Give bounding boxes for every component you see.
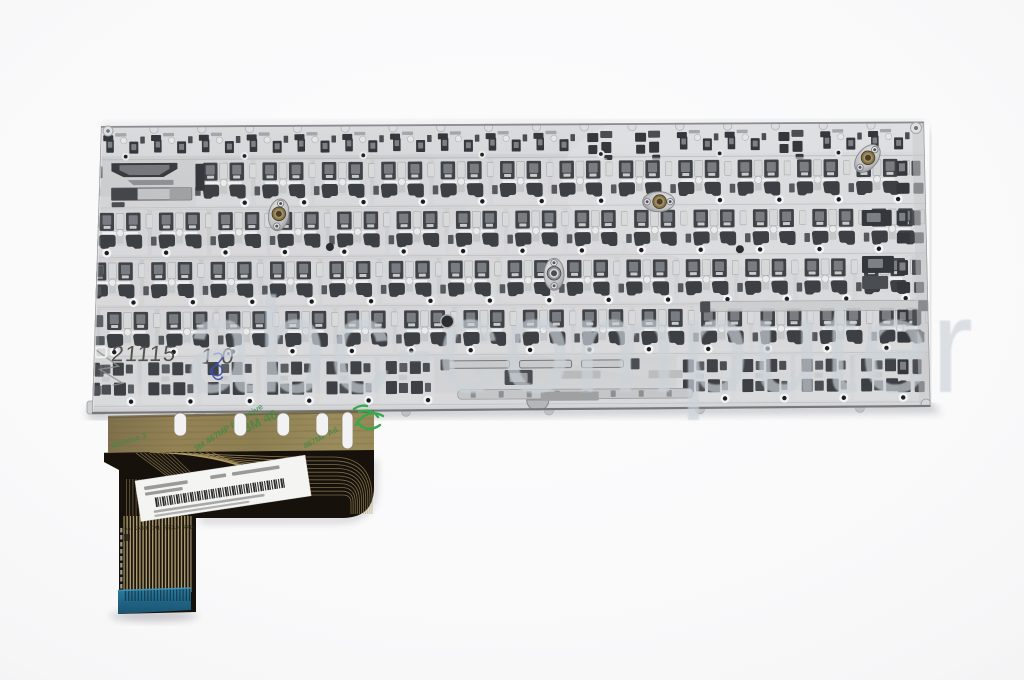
svg-text:21115: 21115 — [110, 341, 178, 366]
svg-text:6A KA8H CM1 S6DLN PAD+: 6A KA8H CM1 S6DLN PAD+ — [124, 524, 197, 532]
svg-text:abc-computer: abc-computer — [185, 270, 975, 421]
